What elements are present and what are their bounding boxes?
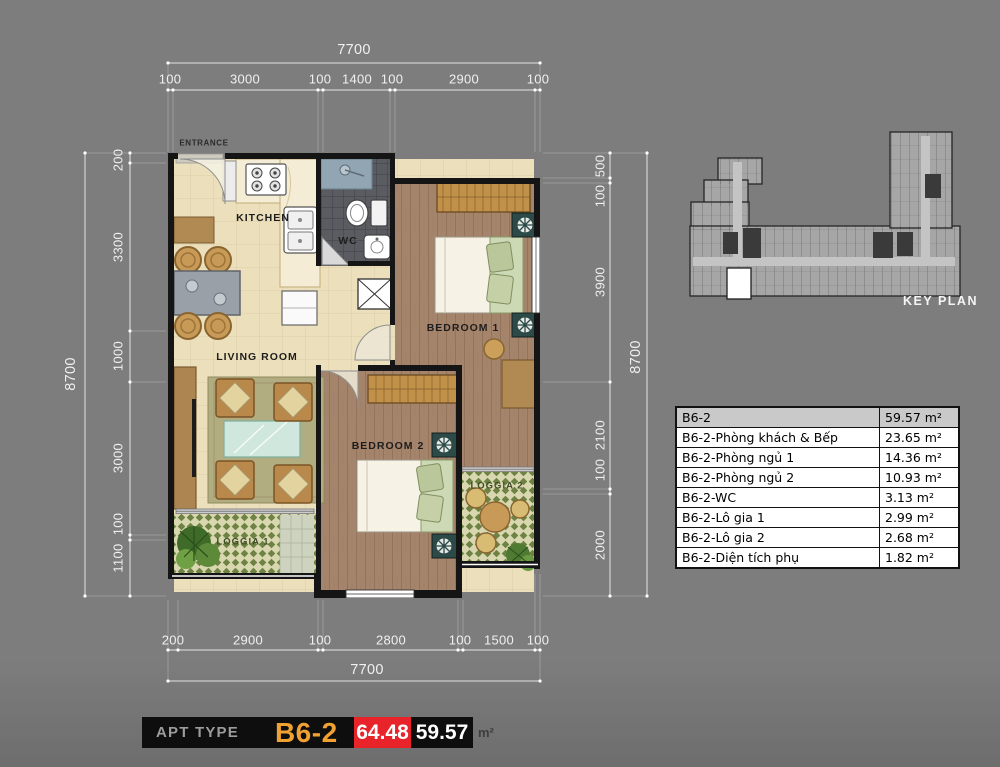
pillow xyxy=(486,241,514,272)
area-table-header-row: B6-2 59.57 m² xyxy=(676,407,959,428)
dim-top-total: 7700 xyxy=(337,42,370,58)
dining-chair xyxy=(175,313,201,339)
area-value: 10.93 m² xyxy=(880,468,960,488)
area-table-row: B6-2-Lô gia 2 2.68 m² xyxy=(676,528,959,548)
area-value: 59.57 m² xyxy=(880,407,960,428)
entrance-label: ENTRANCE xyxy=(179,139,228,148)
dim-left-seg: 3000 xyxy=(111,443,126,473)
bedroom1-label: BEDROOM 1 xyxy=(427,322,500,334)
dim-right-seg: 3900 xyxy=(593,267,608,297)
armchair xyxy=(274,465,312,503)
key-plan-caption: KEY PLAN xyxy=(903,294,978,308)
wardrobe xyxy=(368,375,458,403)
apt-type-bar: APT TYPE B6-2 64.48 59.57 xyxy=(142,717,473,748)
area-unit-label: m² xyxy=(478,725,494,740)
bed xyxy=(357,460,453,532)
dining-table xyxy=(174,271,240,315)
armchair xyxy=(216,461,254,499)
highlighted-unit xyxy=(727,268,751,299)
armchair xyxy=(274,383,312,421)
dim-right-seg: 2000 xyxy=(593,530,608,560)
loggia-chair xyxy=(511,500,529,518)
loggia2-label: LOGGIA 2 xyxy=(470,481,523,492)
area-label: B6-2-WC xyxy=(676,488,880,508)
dim-right-seg: 2100 xyxy=(593,420,608,450)
wc-label: WC xyxy=(338,235,358,247)
living-room-furniture xyxy=(174,367,324,509)
pillow xyxy=(416,493,443,522)
dim-bottom-seg: 2900 xyxy=(233,633,263,648)
washing-machine xyxy=(358,279,391,309)
area-value: 23.65 m² xyxy=(880,428,960,448)
dining-chair xyxy=(205,247,231,273)
dim-top-seg: 100 xyxy=(159,72,182,87)
dim-left-seg: 3300 xyxy=(111,232,126,262)
loggia-chair xyxy=(476,533,496,553)
floor-plan-page: { "plan": { "entrance_label": "ENTRANCE"… xyxy=(0,0,1000,767)
area-label: B6-2 xyxy=(676,407,880,428)
dim-top-seg: 100 xyxy=(309,72,332,87)
area-label: B6-2-Phòng ngủ 2 xyxy=(676,468,880,488)
desk xyxy=(502,360,537,408)
coffee-table xyxy=(224,421,300,457)
area-value: 1.82 m² xyxy=(880,548,960,569)
area-label: B6-2-Diện tích phụ xyxy=(676,548,880,569)
apt-code: B6-2 xyxy=(275,717,338,749)
dim-bottom-seg: 100 xyxy=(309,633,332,648)
pillow xyxy=(416,463,444,492)
dim-left-seg: 1000 xyxy=(111,341,126,371)
loggia-table xyxy=(480,502,510,532)
dim-left-seg: 200 xyxy=(111,149,126,172)
bed xyxy=(435,237,523,313)
kitchen-label: KITCHEN xyxy=(236,212,290,224)
loggia1-tiles xyxy=(280,515,314,573)
gross-area-badge: 64.48 xyxy=(354,717,411,748)
area-table-row: B6-2-WC 3.13 m² xyxy=(676,488,959,508)
dining-chair xyxy=(175,247,201,273)
dim-left-seg: 100 xyxy=(111,513,126,536)
wardrobe xyxy=(437,182,530,212)
area-label: B6-2-Phòng khách & Bếp xyxy=(676,428,880,448)
bedroom2-label: BEDROOM 2 xyxy=(352,440,425,452)
nightstand xyxy=(432,433,457,457)
area-table: B6-2 59.57 m² B6-2-Phòng khách & Bếp 23.… xyxy=(675,406,960,569)
area-value: 14.36 m² xyxy=(880,448,960,468)
stove xyxy=(246,164,286,195)
stool xyxy=(484,339,504,359)
area-value: 2.99 m² xyxy=(880,508,960,528)
nightstand xyxy=(432,534,457,558)
area-table-row: B6-2-Phòng ngủ 2 10.93 m² xyxy=(676,468,959,488)
dim-top-seg: 100 xyxy=(527,72,550,87)
area-label: B6-2-Lô gia 2 xyxy=(676,528,880,548)
dim-bottom-total: 7700 xyxy=(350,662,383,678)
area-table-row: B6-2-Diện tích phụ 1.82 m² xyxy=(676,548,959,569)
dim-right-seg: 100 xyxy=(593,185,608,208)
dim-bottom-seg: 2800 xyxy=(376,633,406,648)
dining-chair xyxy=(205,313,231,339)
floor-plan xyxy=(168,153,540,598)
dining-set xyxy=(174,247,240,339)
dim-left-seg: 1100 xyxy=(111,543,126,572)
dim-bottom-seg: 100 xyxy=(449,633,472,648)
area-value: 3.13 m² xyxy=(880,488,960,508)
dim-left-total: 8700 xyxy=(63,357,79,390)
dim-right-total: 8700 xyxy=(628,340,644,373)
area-label: B6-2-Lô gia 1 xyxy=(676,508,880,528)
dim-right-seg: 100 xyxy=(593,459,608,482)
area-table-row: B6-2-Phòng ngủ 1 14.36 m² xyxy=(676,448,959,468)
area-table-row: B6-2-Lô gia 1 2.99 m² xyxy=(676,508,959,528)
dim-bottom-seg: 1500 xyxy=(484,633,514,648)
loggia1-label: LOGGIA 1 xyxy=(216,537,269,548)
wc-sink xyxy=(364,235,390,259)
living-room-label: LIVING ROOM xyxy=(216,351,298,363)
dim-top-seg: 3000 xyxy=(230,72,260,87)
dim-top-seg: 1400 xyxy=(342,72,372,87)
tv xyxy=(192,399,196,477)
area-value: 2.68 m² xyxy=(880,528,960,548)
pillow xyxy=(486,274,513,305)
dim-right-seg: 500 xyxy=(593,155,608,178)
net-area-badge: 59.57 xyxy=(411,717,473,748)
console-table xyxy=(174,217,214,243)
armchair xyxy=(216,379,254,417)
dim-bottom-seg: 100 xyxy=(527,633,550,648)
area-table-row: B6-2-Phòng khách & Bếp 23.65 m² xyxy=(676,428,959,448)
dim-top-seg: 2900 xyxy=(449,72,479,87)
dim-top-seg: 100 xyxy=(381,72,404,87)
area-label: B6-2-Phòng ngủ 1 xyxy=(676,448,880,468)
apt-type-label: APT TYPE xyxy=(156,724,239,741)
dim-bottom-seg: 200 xyxy=(162,633,185,648)
key-plan: KEY PLAN xyxy=(685,118,970,313)
bedroom2-furniture xyxy=(357,375,458,558)
